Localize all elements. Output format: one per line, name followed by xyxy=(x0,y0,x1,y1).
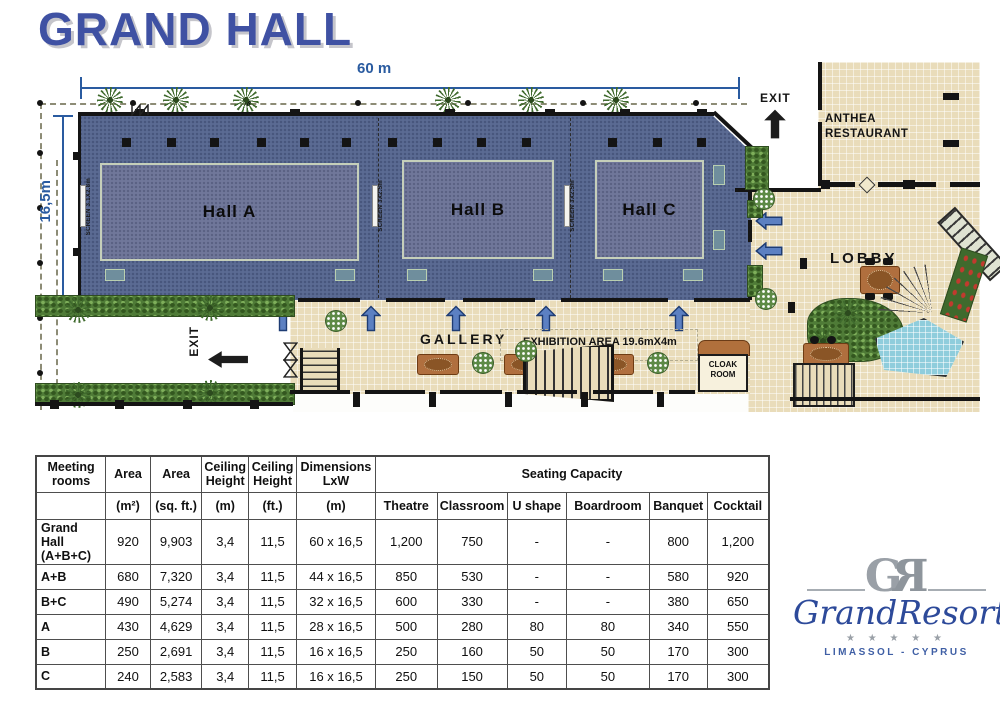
logo-rule-right xyxy=(928,589,986,591)
value-cell: 600 xyxy=(375,589,437,614)
palm-tree xyxy=(233,87,259,113)
table-row: Grand Hall (A+B+C)9209,9033,411,560 x 16… xyxy=(36,519,769,564)
subheader-classroom: Classroom xyxy=(437,492,507,519)
width-dimension-label: 60 m xyxy=(357,60,391,77)
hall-b-stage: Hall B xyxy=(402,160,554,259)
column-marker xyxy=(800,258,807,269)
entrance-arrow-icon xyxy=(755,242,783,260)
column-marker xyxy=(788,302,795,313)
subheader-blank xyxy=(36,492,106,519)
value-cell: 530 xyxy=(437,564,507,589)
plant xyxy=(647,352,669,374)
value-cell: 11,5 xyxy=(249,519,297,564)
screen-label: SCREEN 3X2.5m xyxy=(378,180,384,232)
cloakroom-label-line2: ROOM xyxy=(700,370,746,380)
value-cell: 330 xyxy=(437,589,507,614)
podium xyxy=(335,269,355,281)
value-cell: - xyxy=(507,519,566,564)
value-cell: 250 xyxy=(375,639,437,664)
capacity-table-body: Grand Hall (A+B+C)9209,9033,411,560 x 16… xyxy=(36,519,769,689)
value-cell: 1,200 xyxy=(375,519,437,564)
boundary-dot xyxy=(355,100,361,106)
column-marker xyxy=(522,138,531,147)
table-row: B2502,6913,411,516 x 16,5250160505017030… xyxy=(36,639,769,664)
boundary-dot xyxy=(37,150,43,156)
value-cell: 1,200 xyxy=(707,519,769,564)
table-row: C2402,5833,411,516 x 16,5250150505017030… xyxy=(36,664,769,689)
floor-plan: 60 m 16,5m xyxy=(35,60,980,425)
wall-segment xyxy=(298,298,360,302)
wall-stub xyxy=(581,392,588,407)
wall-stub xyxy=(429,392,436,407)
wall-segment xyxy=(517,390,577,394)
door-symbol xyxy=(131,104,149,116)
value-cell: 3,4 xyxy=(202,664,249,689)
grandresort-logo: GR GrandResort ★ ★ ★ ★ ★ LIMASSOL - CYPR… xyxy=(793,556,1000,658)
podium xyxy=(603,269,623,281)
table-row: A+B6807,3203,411,544 x 16,5850530--58092… xyxy=(36,564,769,589)
wall-segment xyxy=(593,390,653,394)
wall-segment xyxy=(950,182,980,187)
value-cell: 80 xyxy=(567,614,650,639)
palm-tree xyxy=(197,295,223,321)
wall-segment xyxy=(386,298,445,302)
wall-stub xyxy=(505,392,512,407)
column-marker xyxy=(167,138,176,147)
wall-segment xyxy=(561,298,668,302)
hall-a-stage: Hall A xyxy=(100,163,359,261)
value-cell: 280 xyxy=(437,614,507,639)
wall-pier xyxy=(620,109,630,116)
header-ceiling-m: Ceiling Height xyxy=(202,456,249,492)
podium xyxy=(533,269,553,281)
value-cell: 9,903 xyxy=(150,519,202,564)
page-title: GRAND HALL xyxy=(38,2,352,56)
value-cell: 3,4 xyxy=(202,564,249,589)
width-dimension-tick xyxy=(738,77,740,99)
boundary-dot xyxy=(693,100,699,106)
column-marker xyxy=(433,138,442,147)
value-cell: 250 xyxy=(375,664,437,689)
table-row: A4304,6293,411,528 x 16,5500280808034055… xyxy=(36,614,769,639)
room-name-cell: B xyxy=(36,639,106,664)
header-area-m2: Area xyxy=(106,456,151,492)
value-cell: 300 xyxy=(707,639,769,664)
wall-pier xyxy=(50,400,59,409)
podium xyxy=(407,269,427,281)
value-cell: 250 xyxy=(106,639,151,664)
height-dimension-tick xyxy=(53,115,73,117)
palm-tree xyxy=(65,297,91,323)
entrance-arrow-icon xyxy=(536,305,556,332)
table-header-row: Meeting rooms Area Area Ceiling Height C… xyxy=(36,456,769,492)
value-cell: - xyxy=(507,589,566,614)
wall-segment xyxy=(365,390,425,394)
hall-a-label: Hall A xyxy=(203,202,257,222)
value-cell: 32 x 16,5 xyxy=(297,589,376,614)
value-cell: 60 x 16,5 xyxy=(297,519,376,564)
wall-pier xyxy=(290,109,300,116)
monogram-r: R xyxy=(892,556,929,598)
subheader-boardroom: Boardroom xyxy=(567,492,650,519)
room-name-cell: B+C xyxy=(36,589,106,614)
value-cell: 50 xyxy=(507,639,566,664)
value-cell: 680 xyxy=(106,564,151,589)
wall-pier xyxy=(73,248,81,256)
wall-segment xyxy=(440,390,502,394)
value-cell: - xyxy=(567,589,650,614)
column-marker xyxy=(697,138,706,147)
bench xyxy=(417,354,459,375)
value-cell: 2,583 xyxy=(150,664,202,689)
subheader-ft: (ft.) xyxy=(249,492,297,519)
wall-pier xyxy=(697,109,707,116)
room-name-cell: A xyxy=(36,614,106,639)
palm-tree xyxy=(518,87,544,113)
wall-pier xyxy=(821,180,830,189)
value-cell: - xyxy=(567,519,650,564)
subheader-m: (m) xyxy=(202,492,249,519)
door-symbol xyxy=(283,342,298,378)
page: GRAND HALL 60 m 16,5m xyxy=(0,0,1000,707)
palm-tree xyxy=(163,87,189,113)
wall-segment xyxy=(290,390,350,394)
exit-up-arrow-icon xyxy=(763,106,787,142)
screen-label: SCREEN 3.1X2.8m xyxy=(86,178,92,235)
value-cell: 800 xyxy=(649,519,707,564)
value-cell: 170 xyxy=(649,664,707,689)
hall-c-label: Hall C xyxy=(622,200,676,220)
wall-segment xyxy=(790,397,980,401)
restaurant-label-line2: RESTAURANT xyxy=(825,127,908,142)
value-cell: 28 x 16,5 xyxy=(297,614,376,639)
chair xyxy=(810,336,819,344)
header-ceiling-ft: Ceiling Height xyxy=(249,456,297,492)
plant xyxy=(472,352,494,374)
podium xyxy=(713,230,725,250)
value-cell: 490 xyxy=(106,589,151,614)
wall-segment xyxy=(818,62,822,110)
wall-pier xyxy=(943,140,959,147)
wall-segment xyxy=(748,220,752,242)
value-cell: 3,4 xyxy=(202,614,249,639)
logo-stars-icon: ★ ★ ★ ★ ★ xyxy=(793,633,1000,644)
value-cell: 850 xyxy=(375,564,437,589)
subheader-dim-m: (m) xyxy=(297,492,376,519)
value-cell: 380 xyxy=(649,589,707,614)
subheader-ushape: U shape xyxy=(507,492,566,519)
value-cell: 16 x 16,5 xyxy=(297,664,376,689)
value-cell: 150 xyxy=(437,664,507,689)
podium xyxy=(105,269,125,281)
gallery-label: GALLERY xyxy=(420,331,507,347)
value-cell: 11,5 xyxy=(249,564,297,589)
wall-segment xyxy=(694,298,750,302)
palm-tree xyxy=(97,87,123,113)
value-cell: 920 xyxy=(106,519,151,564)
boundary-dot xyxy=(37,370,43,376)
value-cell: 50 xyxy=(567,639,650,664)
entrance-arrow-icon xyxy=(446,305,466,332)
value-cell: 5,274 xyxy=(150,589,202,614)
wall-segment xyxy=(78,112,714,116)
value-cell: 44 x 16,5 xyxy=(297,564,376,589)
wall-segment xyxy=(463,298,535,302)
boundary-dot xyxy=(465,100,471,106)
hedge xyxy=(745,146,769,190)
header-area-sqft: Area xyxy=(150,456,202,492)
column-marker xyxy=(210,138,219,147)
wall-pier xyxy=(115,400,124,409)
boundary-dash-inner xyxy=(56,160,58,405)
restaurant-label: ANTHEA RESTAURANT xyxy=(825,112,908,142)
column-marker xyxy=(477,138,486,147)
wall-pier xyxy=(903,180,915,189)
boundary-dot xyxy=(37,260,43,266)
value-cell: 920 xyxy=(707,564,769,589)
value-cell: 240 xyxy=(106,664,151,689)
column-marker xyxy=(122,138,131,147)
width-dimension-tick xyxy=(80,77,82,99)
wall-pier xyxy=(943,93,959,100)
value-cell: 550 xyxy=(707,614,769,639)
exit-left-arrow-icon xyxy=(207,350,249,369)
value-cell: 300 xyxy=(707,664,769,689)
podium xyxy=(683,269,703,281)
logo-location: LIMASSOL - CYPRUS xyxy=(793,647,1000,658)
entrance-arrow-icon xyxy=(361,305,381,332)
wall-pier xyxy=(183,400,192,409)
exit-top-label: EXIT xyxy=(760,91,791,105)
column-marker xyxy=(608,138,617,147)
value-cell: - xyxy=(507,564,566,589)
plan-bottom-mask xyxy=(35,412,980,425)
chair xyxy=(883,258,893,265)
value-cell: 3,4 xyxy=(202,519,249,564)
room-name-cell: A+B xyxy=(36,564,106,589)
subheader-theatre: Theatre xyxy=(375,492,437,519)
wall-segment xyxy=(669,390,695,394)
wall-pier xyxy=(73,152,81,160)
subheader-m2: (m²) xyxy=(106,492,151,519)
value-cell: 3,4 xyxy=(202,589,249,614)
entrance-arrow-icon xyxy=(669,305,689,332)
value-cell: 750 xyxy=(437,519,507,564)
subheader-banquet: Banquet xyxy=(649,492,707,519)
value-cell: 50 xyxy=(567,664,650,689)
chair xyxy=(865,258,875,265)
value-cell: 430 xyxy=(106,614,151,639)
cloakroom-label-line1: CLOAK xyxy=(700,360,746,370)
value-cell: 11,5 xyxy=(249,614,297,639)
plant xyxy=(753,188,775,210)
room-name-cell: Grand Hall (A+B+C) xyxy=(36,519,106,564)
plant xyxy=(515,340,537,362)
boundary-dot xyxy=(37,100,43,106)
column-marker xyxy=(342,138,351,147)
hall-b-label: Hall B xyxy=(451,200,505,220)
logo-monogram: GR xyxy=(793,556,1000,598)
bench xyxy=(803,343,849,365)
value-cell: 3,4 xyxy=(202,639,249,664)
table-subheader-row: (m²) (sq. ft.) (m) (ft.) (m) Theatre Cla… xyxy=(36,492,769,519)
wall-stub xyxy=(657,392,664,407)
header-meeting-rooms: Meeting rooms xyxy=(36,456,106,492)
value-cell: 50 xyxy=(507,664,566,689)
wall-pier xyxy=(545,109,555,116)
logo-rule-left xyxy=(807,589,865,591)
room-name-cell: C xyxy=(36,664,106,689)
subheader-cocktail: Cocktail xyxy=(707,492,769,519)
value-cell: 16 x 16,5 xyxy=(297,639,376,664)
value-cell: 2,691 xyxy=(150,639,202,664)
palm-tree xyxy=(835,300,861,326)
subheader-sqft: (sq. ft.) xyxy=(150,492,202,519)
screen-label: SCREEN 3X2.5m xyxy=(570,180,576,232)
wall-pier xyxy=(445,109,455,116)
table-row: B+C4905,2743,411,532 x 16,5600330--38065… xyxy=(36,589,769,614)
value-cell: 7,320 xyxy=(150,564,202,589)
column-marker xyxy=(300,138,309,147)
podium xyxy=(713,165,725,185)
boundary-dot xyxy=(580,100,586,106)
wall-stub xyxy=(353,392,360,407)
value-cell: 11,5 xyxy=(249,664,297,689)
height-dimension-line xyxy=(62,115,64,298)
value-cell: - xyxy=(567,564,650,589)
value-cell: 650 xyxy=(707,589,769,614)
capacity-table: Meeting rooms Area Area Ceiling Height C… xyxy=(35,455,770,690)
value-cell: 11,5 xyxy=(249,639,297,664)
wall-segment xyxy=(818,122,822,186)
column-marker xyxy=(388,138,397,147)
chair xyxy=(827,336,836,344)
wall-pier xyxy=(250,400,259,409)
stairs xyxy=(300,348,340,394)
cloakroom: CLOAK ROOM xyxy=(698,354,748,392)
exit-left-label: EXIT xyxy=(187,326,201,357)
plant xyxy=(755,288,777,310)
header-seating-capacity: Seating Capacity xyxy=(375,456,769,492)
header-dimensions: Dimensions LxW xyxy=(297,456,376,492)
column-marker xyxy=(257,138,266,147)
logo-monogram-icon: GR xyxy=(865,556,928,598)
hall-c-stage: Hall C xyxy=(595,160,704,259)
value-cell: 580 xyxy=(649,564,707,589)
height-dimension-label: 16,5m xyxy=(37,180,54,223)
value-cell: 11,5 xyxy=(249,589,297,614)
restaurant-label-line1: ANTHEA xyxy=(825,112,908,127)
column-marker xyxy=(653,138,662,147)
value-cell: 500 xyxy=(375,614,437,639)
value-cell: 340 xyxy=(649,614,707,639)
value-cell: 170 xyxy=(649,639,707,664)
plant xyxy=(325,310,347,332)
value-cell: 160 xyxy=(437,639,507,664)
value-cell: 4,629 xyxy=(150,614,202,639)
value-cell: 80 xyxy=(507,614,566,639)
